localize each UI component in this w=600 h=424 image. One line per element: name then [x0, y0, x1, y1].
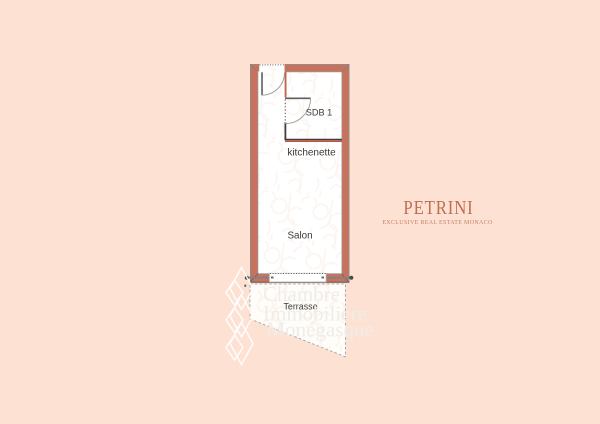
- svg-text:SDB 1: SDB 1: [306, 108, 333, 118]
- svg-text:PETRINI: PETRINI: [403, 196, 473, 218]
- svg-text:kitchenette: kitchenette: [287, 148, 336, 159]
- svg-text:Monégasque: Monégasque: [267, 318, 374, 342]
- svg-text:Salon: Salon: [287, 231, 312, 242]
- svg-text:EXCLUSIVE REAL ESTATE MONACO: EXCLUSIVE REAL ESTATE MONACO: [382, 220, 493, 226]
